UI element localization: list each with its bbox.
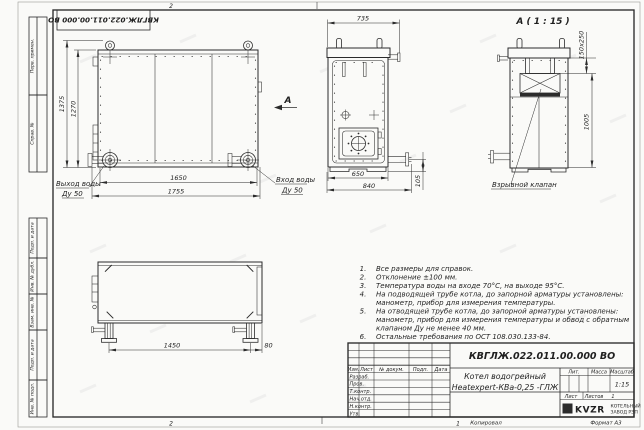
footer-copy-label: Копировал bbox=[470, 421, 502, 427]
frame-col-podp-data-1: Подп. и дата bbox=[30, 222, 36, 253]
note-text: манометр, прибор для измерения температу… bbox=[376, 299, 555, 307]
detail-title: А ( 1 : 15 ) bbox=[515, 17, 569, 27]
note-num: 2. bbox=[360, 274, 367, 282]
col-data: Дата bbox=[434, 367, 448, 373]
company-line1: КОТЕЛЬНЫЙ bbox=[611, 403, 641, 410]
note-text: Все размеры для справок. bbox=[376, 265, 473, 273]
row-prov: Пров. bbox=[350, 382, 365, 388]
view-direction-arrow: А bbox=[274, 96, 297, 110]
dim-1450-label: 1450 bbox=[164, 342, 181, 350]
view-arrow-letter: А bbox=[284, 96, 292, 106]
dim-735-label: 735 bbox=[357, 15, 369, 23]
inlet-dn-label: Ду 50 bbox=[281, 187, 303, 195]
bottom-view: 1450 80 bbox=[92, 262, 273, 353]
mass-label: Масса bbox=[591, 370, 607, 376]
row-razrab: Разраб. bbox=[350, 374, 370, 380]
scale-label: Масштаб bbox=[610, 370, 634, 376]
sheets-label: Листов bbox=[584, 394, 604, 400]
col-izm: Изм. bbox=[348, 367, 360, 373]
fold-mark-bottom-2: 1 bbox=[456, 421, 460, 428]
frame-col-vzam-inv: Взам. инв. № bbox=[30, 296, 36, 327]
detail-view-a: А ( 1 : 15 ) Взрывной клапан bbox=[488, 17, 596, 189]
dim-1375-label: 1375 bbox=[58, 96, 66, 113]
company-logo: KVZR КОТЕЛЬНЫЙ ЗАВОД РЭП bbox=[563, 403, 641, 416]
scale-value: 1:15 bbox=[615, 381, 630, 389]
sheet-label: Лист bbox=[564, 394, 579, 400]
note-num: 3. bbox=[360, 282, 367, 290]
col-podp: Подп. bbox=[413, 367, 428, 373]
frame-col-podp-data-2: Подп. и дата bbox=[30, 339, 36, 370]
note-text: манометр, прибор для измерения температу… bbox=[376, 316, 630, 324]
bottom-body-outline bbox=[98, 262, 262, 323]
inlet-label: Вход воды bbox=[276, 176, 316, 184]
dim-1650-label: 1650 bbox=[170, 174, 187, 182]
col-docnum: № докум. bbox=[378, 367, 404, 373]
row-utv: Утв. bbox=[350, 411, 361, 417]
doc-number: КВГЛЖ.022.011.00.000 ВО bbox=[469, 351, 615, 362]
product-name-line2: Heatexpert-КВа-0,25 -ГЛЖ bbox=[452, 383, 559, 392]
outlet-dn-label: Ду 50 bbox=[61, 190, 83, 198]
note-text: Температура воды на входе 70°С, на выход… bbox=[376, 282, 564, 290]
frame-col-sprav-no: Справ. № bbox=[30, 122, 36, 145]
dim-840-label: 840 bbox=[363, 182, 375, 190]
row-nkontr: Н.контр. bbox=[350, 404, 372, 410]
frame-col-perv-primen: Перв. примен. bbox=[30, 39, 36, 74]
col-list: Лист bbox=[359, 367, 374, 373]
row-tkontr: Т.контр. bbox=[350, 389, 372, 395]
boiler-body-outline bbox=[98, 50, 258, 167]
note-num: 4. bbox=[360, 291, 367, 299]
footer-format-label: Формат А3 bbox=[590, 421, 622, 427]
product-name-line1: Котел водогрейный bbox=[464, 372, 546, 381]
note-text: На подводящей трубе котла, до запорной а… bbox=[376, 291, 624, 299]
title-block: КВГЛЖ.022.011.00.000 ВО Котел водогрейны… bbox=[348, 343, 641, 427]
side-view: 735 650 840 105 bbox=[327, 15, 426, 194]
logo-text: KVZR bbox=[575, 406, 605, 416]
note-text: клапаном Ду не менее 40 мм. bbox=[376, 325, 486, 333]
frame-col-inv-dubl: Инв. № дубл. bbox=[30, 260, 36, 291]
notes-block: 1. Все размеры для справок. 2. Отклонени… bbox=[360, 265, 630, 341]
front-view: 1375 1270 1650 1755 Выход воды Ду 50 Вхо… bbox=[56, 41, 316, 200]
fold-mark-bottom: 2 bbox=[169, 421, 173, 428]
note-num: 5. bbox=[360, 308, 367, 316]
dim-650-label: 650 bbox=[352, 170, 364, 178]
note-text: Остальные требования по ОСТ 108.030.133-… bbox=[376, 333, 551, 341]
drawing-sheet: 2 2 1 Перв. примен. Справ. № Подп. и дат… bbox=[0, 0, 644, 430]
dim-105-label: 105 bbox=[414, 175, 422, 187]
dim-150x250-label: 150x250 bbox=[578, 31, 586, 60]
logo-mark-icon bbox=[563, 404, 573, 414]
inverted-doc-number: КВГЛЖ.022.011.00.000 ВО bbox=[48, 15, 159, 24]
row-nachotd: Нач.отд. bbox=[350, 397, 372, 403]
dim-1755-label: 1755 bbox=[168, 188, 185, 196]
sheets-value: 1 bbox=[611, 394, 614, 400]
fold-mark-top: 2 bbox=[169, 3, 173, 10]
explosion-valve-label: Взрывной клапан bbox=[492, 181, 557, 189]
company-line2: ЗАВОД РЭП bbox=[611, 410, 638, 416]
note-num: 6. bbox=[360, 333, 367, 341]
note-text: Отклонение ±100 мм. bbox=[376, 274, 457, 282]
dim-1005-label: 1005 bbox=[583, 114, 591, 131]
note-num: 1. bbox=[360, 265, 367, 273]
lit-label: Лит. bbox=[567, 370, 580, 376]
note-text: На отводящей трубе котла, до запорной ар… bbox=[376, 308, 618, 316]
dim-80-label: 80 bbox=[264, 342, 272, 350]
frame-col-inv-podl: Инв. № подл. bbox=[30, 383, 36, 415]
outlet-label: Выход воды bbox=[56, 180, 101, 188]
dim-1270-label: 1270 bbox=[70, 101, 78, 118]
